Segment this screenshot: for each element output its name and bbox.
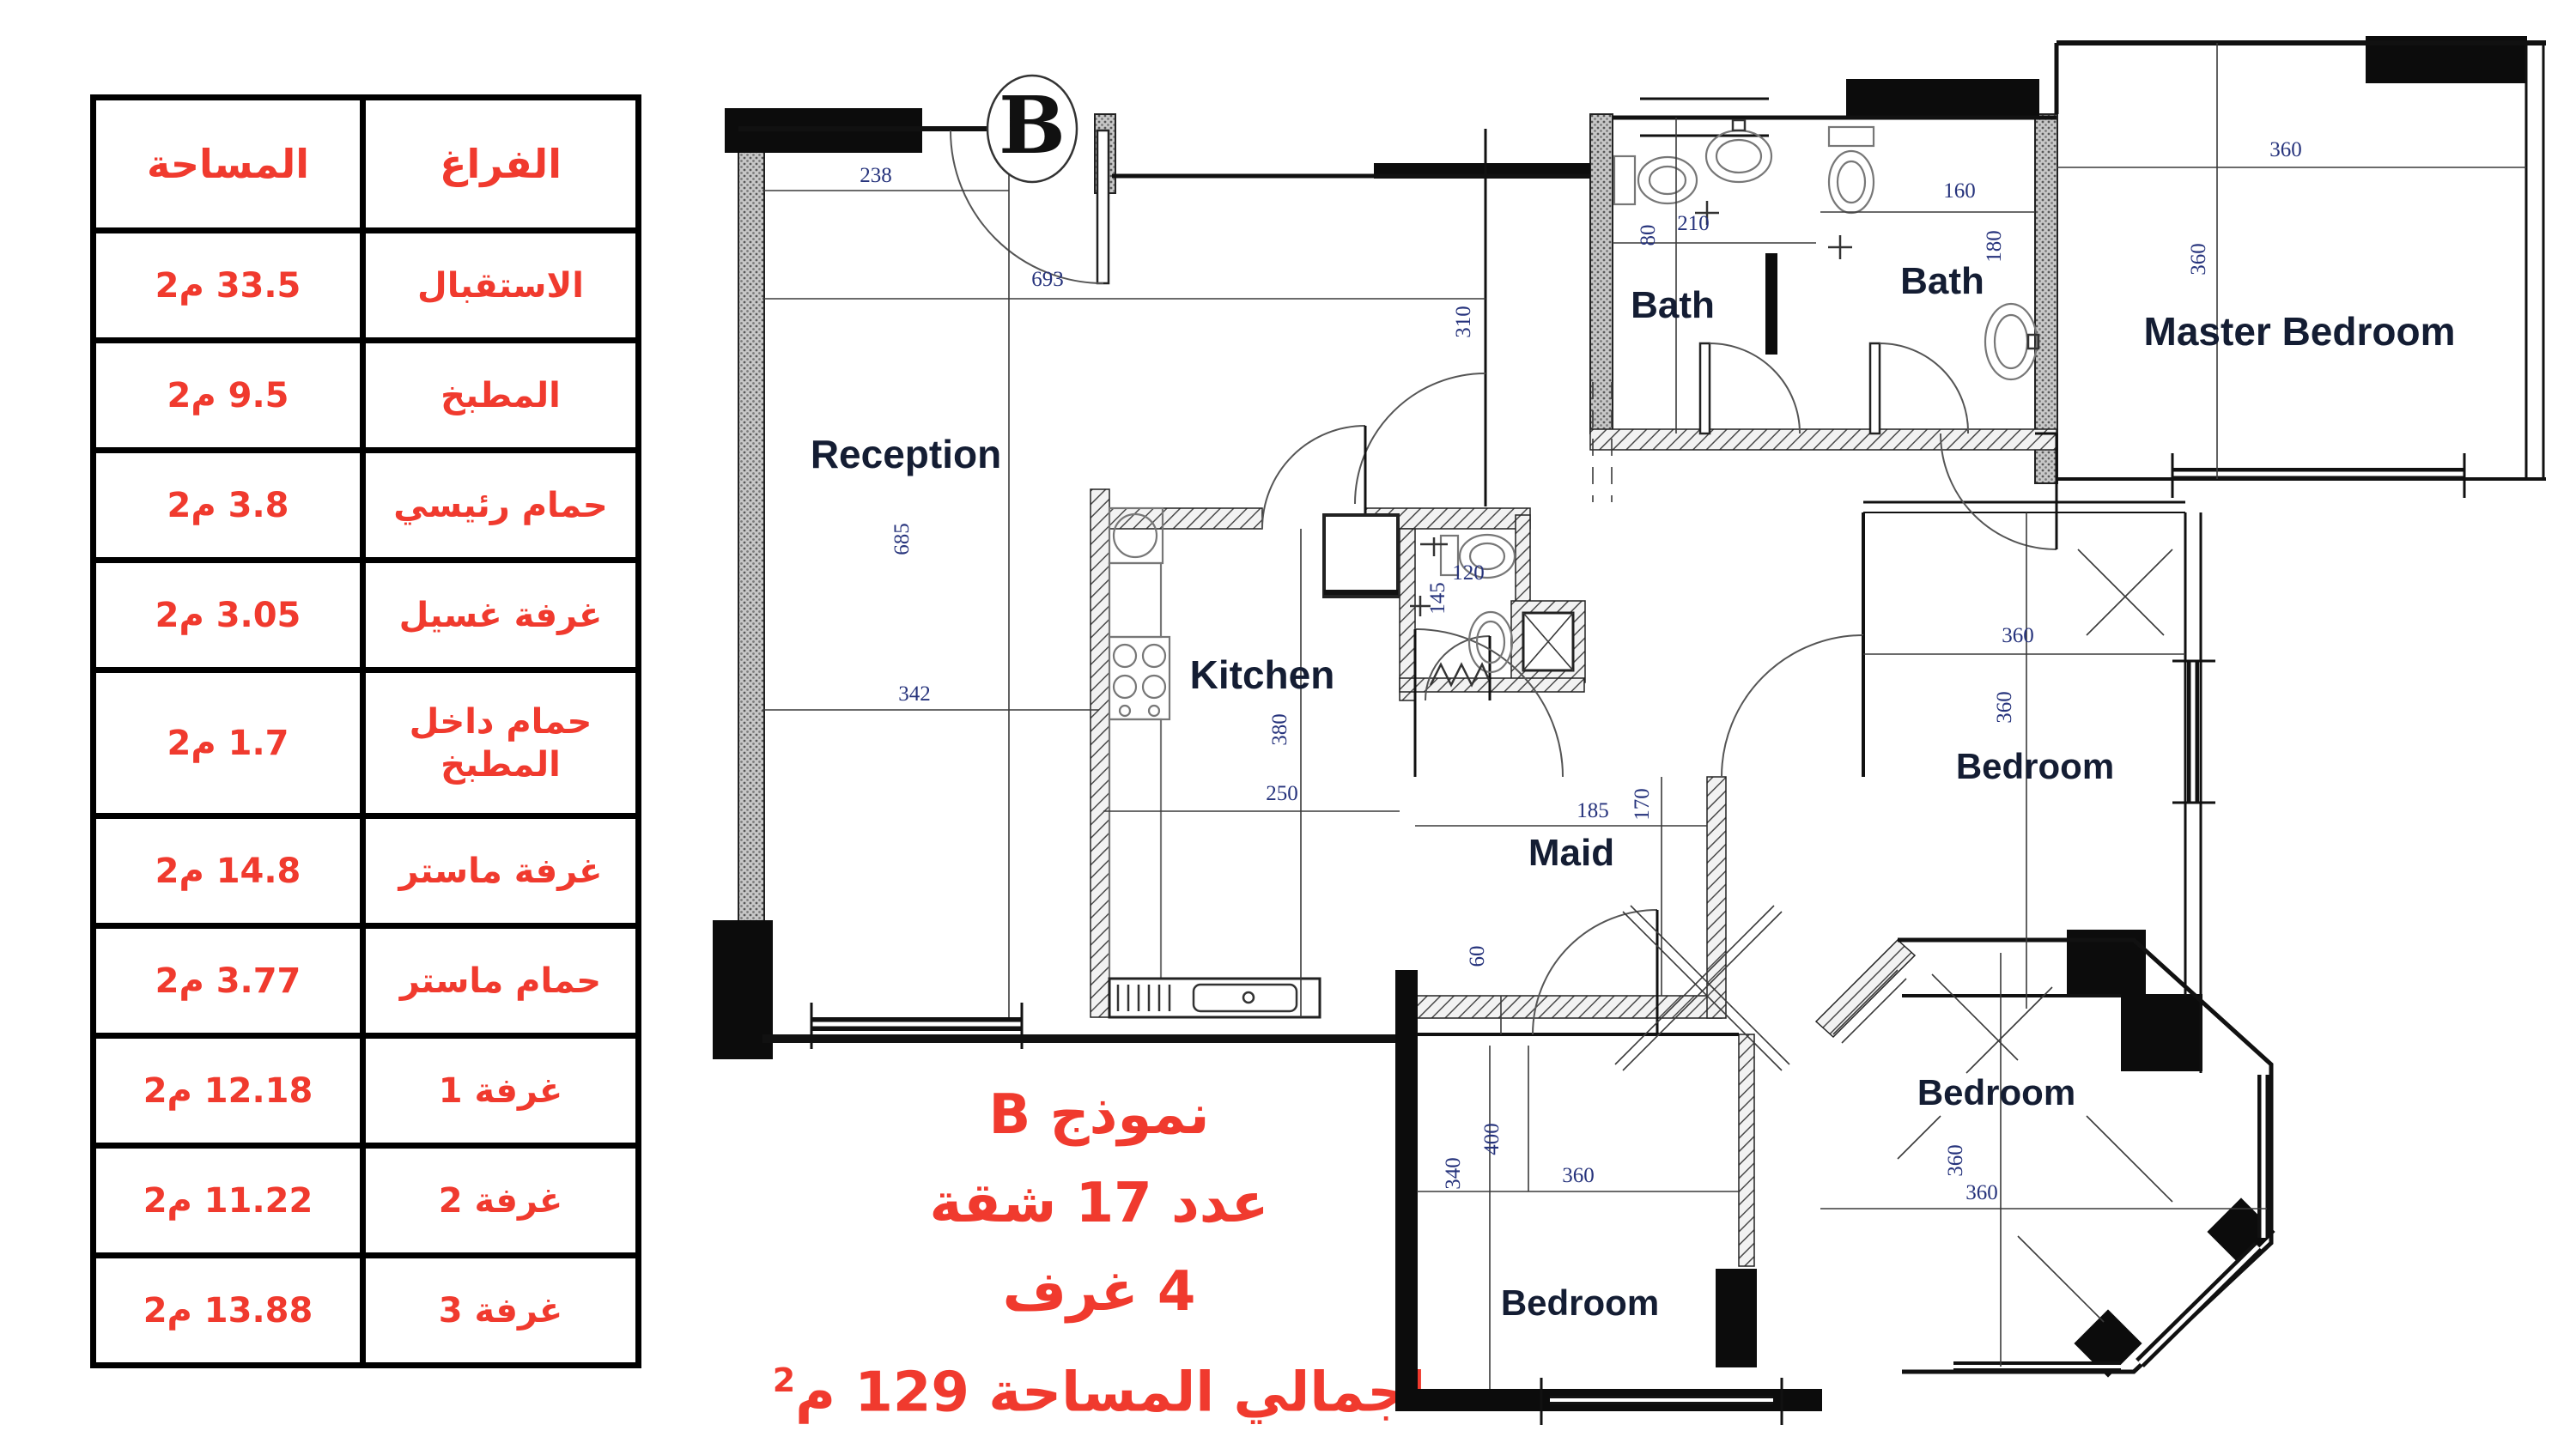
room-cell: حمام داخل المطبخ <box>363 670 639 816</box>
dimension-label: 185 <box>1577 799 1609 822</box>
room-cell: حمام ماستر <box>363 926 639 1036</box>
room-cell: غرفة 2 <box>363 1146 639 1256</box>
table-row: 9.5 م2 المطبخ <box>94 341 639 451</box>
unit-letter: B <box>999 79 1066 172</box>
dimension-label: 250 <box>1266 782 1298 805</box>
table-row: 13.88 م2 غرفة 3 <box>94 1256 639 1366</box>
room-cell: الاستقبال <box>363 231 639 341</box>
dimension-label: 170 <box>1631 788 1654 821</box>
table-row: 3.05 م2 غرفة غسيل <box>94 561 639 670</box>
counter <box>1109 563 1161 637</box>
stove-icon <box>1109 637 1170 719</box>
area-cell: 1.7 م2 <box>94 670 363 816</box>
dimension-label: 160 <box>1943 179 1976 203</box>
room-label: Bedroom <box>1956 746 2114 786</box>
area-cell: 3.8 م2 <box>94 451 363 561</box>
room-label: Kitchen <box>1190 652 1335 697</box>
room-label: Master Bedroom <box>2144 309 2456 354</box>
room-label: Reception <box>811 432 1001 476</box>
dimension-label: 360 <box>2002 624 2034 647</box>
table-row: 11.22 م2 غرفة 2 <box>94 1146 639 1256</box>
dimension-label: 342 <box>898 682 931 706</box>
floor-plan: B ReceptionBathBathMaster BedroomKitchen… <box>713 0 2576 1449</box>
room-cell: غرفة 1 <box>363 1036 639 1146</box>
floor-tile-marks <box>2078 549 2172 635</box>
area-cell: 12.18 م2 <box>94 1036 363 1146</box>
cabinet <box>1324 515 1398 597</box>
kitchen-sink-icon <box>1109 979 1320 1017</box>
area-cell: 3.77 م2 <box>94 926 363 1036</box>
toilet-icon <box>1614 156 1697 204</box>
room-label: Bedroom <box>1917 1072 2075 1113</box>
area-cell: 11.22 م2 <box>94 1146 363 1256</box>
room-cell: المطبخ <box>363 341 639 451</box>
room-label: Bath <box>1900 260 1984 302</box>
counter <box>1109 719 1161 1017</box>
faucet-icon <box>1420 537 1448 556</box>
room-label: Bath <box>1631 284 1715 326</box>
area-cell: 33.5 م2 <box>94 231 363 341</box>
dimension-label: 210 <box>1677 212 1710 235</box>
dimension-label: 120 <box>1452 561 1485 585</box>
dimension-label: 400 <box>1480 1123 1504 1155</box>
dimension-label: 360 <box>1993 691 2016 724</box>
unit-badge: B <box>987 76 1077 182</box>
room-cell: غرفة ماستر <box>363 816 639 926</box>
room-label: Bedroom <box>1501 1282 1659 1323</box>
room-cell: غرفة 3 <box>363 1256 639 1366</box>
table-row: 3.77 م2 حمام ماستر <box>94 926 639 1036</box>
dimension-label: 80 <box>1637 225 1660 246</box>
washer-icon <box>1523 613 1573 670</box>
dimension-label: 60 <box>1466 946 1489 967</box>
door-leaf <box>1097 130 1109 283</box>
room-cell: غرفة غسيل <box>363 561 639 670</box>
dimension-label: 180 <box>1983 230 2006 263</box>
dimension-label: 380 <box>1268 713 1291 746</box>
table-row: 3.8 م2 حمام رئيسي <box>94 451 639 561</box>
table-row: 1.7 م2 حمام داخل المطبخ <box>94 670 639 816</box>
table-row: 33.5 م2 الاستقبال <box>94 231 639 341</box>
room-cell: حمام رئيسي <box>363 451 639 561</box>
dimension-label: 145 <box>1426 582 1449 615</box>
dimension-label: 360 <box>2187 243 2210 276</box>
table-row: 12.18 م2 غرفة 1 <box>94 1036 639 1146</box>
dimension-label: 360 <box>2269 138 2302 161</box>
room-label: Maid <box>1528 832 1614 874</box>
dimension-label: 360 <box>1965 1181 1998 1204</box>
page: المساحة الفراغ 33.5 م2 الاستقبال 9.5 م2 … <box>0 0 2576 1449</box>
toilet-icon <box>1829 127 1874 213</box>
area-cell: 3.05 م2 <box>94 561 363 670</box>
dimension-label: 340 <box>1442 1157 1465 1190</box>
dimension-label: 693 <box>1031 268 1064 291</box>
area-cell: 14.8 م2 <box>94 816 363 926</box>
plan-text-layer: ReceptionBathBathMaster BedroomKitchenMa… <box>811 138 2456 1323</box>
doors <box>951 130 2057 1070</box>
dimension-label: 310 <box>1452 306 1475 338</box>
sink-icon <box>1706 120 1771 182</box>
table-row: 14.8 م2 غرفة ماستر <box>94 816 639 926</box>
header-room: الفراغ <box>363 98 639 231</box>
sink-icon <box>1985 304 2038 379</box>
cross-mark-icon <box>1828 235 1852 259</box>
dimension-label: 360 <box>1944 1144 1967 1177</box>
area-table: المساحة الفراغ 33.5 م2 الاستقبال 9.5 م2 … <box>90 94 641 1368</box>
area-cell: 13.88 م2 <box>94 1256 363 1366</box>
table-header-row: المساحة الفراغ <box>94 98 639 231</box>
area-cell: 9.5 م2 <box>94 341 363 451</box>
header-area: المساحة <box>94 98 363 231</box>
dimension-label: 238 <box>860 164 892 187</box>
dimension-label: 685 <box>890 523 914 555</box>
dimension-label: 360 <box>1562 1164 1595 1187</box>
